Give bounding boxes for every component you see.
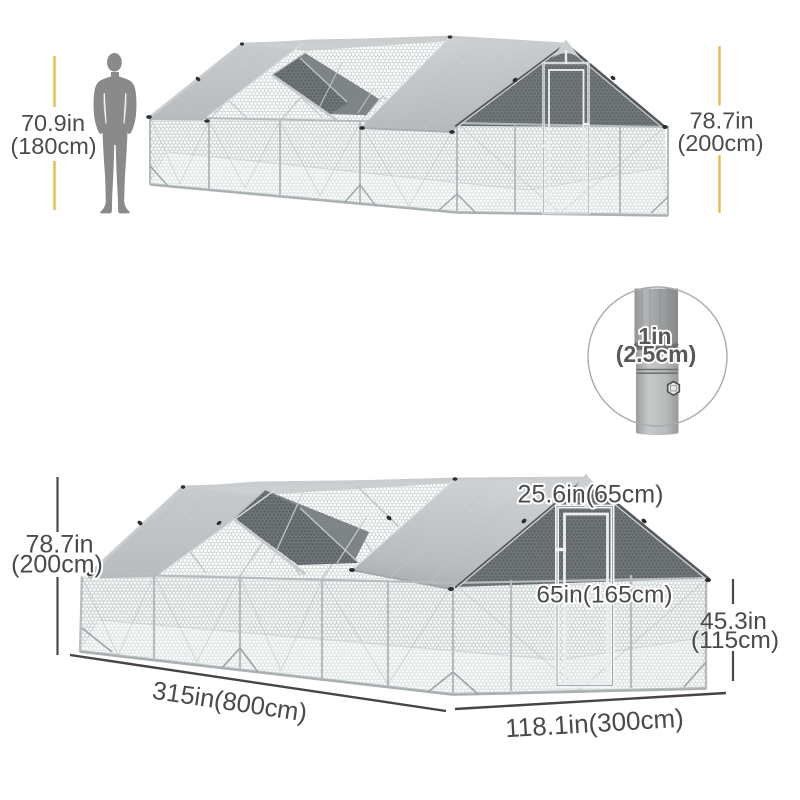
svg-text:(115cm): (115cm) [691,627,779,654]
svg-text:65in(165cm): 65in(165cm) [536,582,672,609]
svg-text:25.6in(65cm): 25.6in(65cm) [518,481,664,509]
svg-text:(200cm): (200cm) [677,130,763,156]
svg-text:(180cm): (180cm) [10,133,96,159]
svg-text:(200cm): (200cm) [11,551,103,579]
svg-text:118.1in(300cm): 118.1in(300cm) [504,703,684,744]
svg-text:(2.5cm): (2.5cm) [616,341,697,367]
svg-text:315in(800cm): 315in(800cm) [151,677,309,728]
